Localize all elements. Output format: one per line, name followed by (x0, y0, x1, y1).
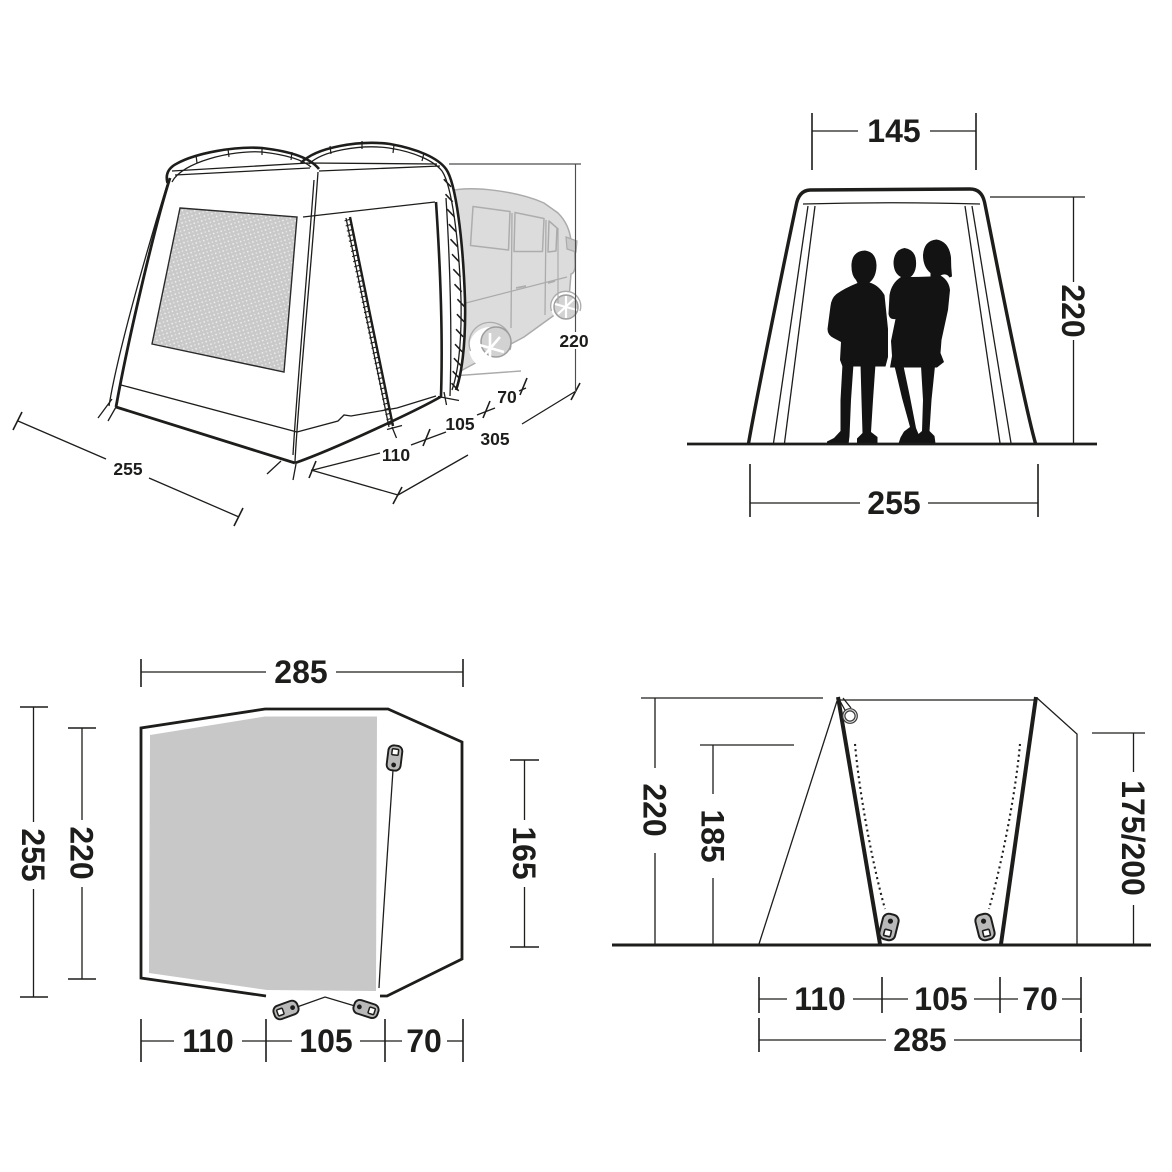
svg-text:175/200: 175/200 (1115, 780, 1151, 896)
svg-text:220: 220 (637, 783, 673, 836)
svg-text:185: 185 (695, 809, 731, 862)
svg-text:220: 220 (1055, 284, 1091, 337)
svg-text:105: 105 (914, 981, 967, 1017)
svg-text:305: 305 (480, 429, 509, 449)
svg-text:255: 255 (15, 828, 51, 881)
svg-text:220: 220 (559, 331, 588, 351)
svg-text:70: 70 (1022, 981, 1058, 1017)
svg-text:110: 110 (182, 1023, 234, 1059)
svg-text:105: 105 (445, 414, 474, 434)
svg-text:70: 70 (497, 387, 517, 407)
svg-text:110: 110 (382, 445, 410, 465)
svg-text:220: 220 (64, 826, 100, 879)
svg-text:165: 165 (506, 826, 542, 879)
svg-text:255: 255 (113, 459, 142, 479)
svg-text:105: 105 (299, 1023, 352, 1059)
svg-text:255: 255 (867, 485, 920, 521)
svg-text:110: 110 (794, 981, 846, 1017)
svg-text:70: 70 (406, 1023, 442, 1059)
svg-text:285: 285 (274, 654, 327, 690)
svg-text:285: 285 (893, 1022, 946, 1058)
svg-text:145: 145 (867, 113, 920, 149)
